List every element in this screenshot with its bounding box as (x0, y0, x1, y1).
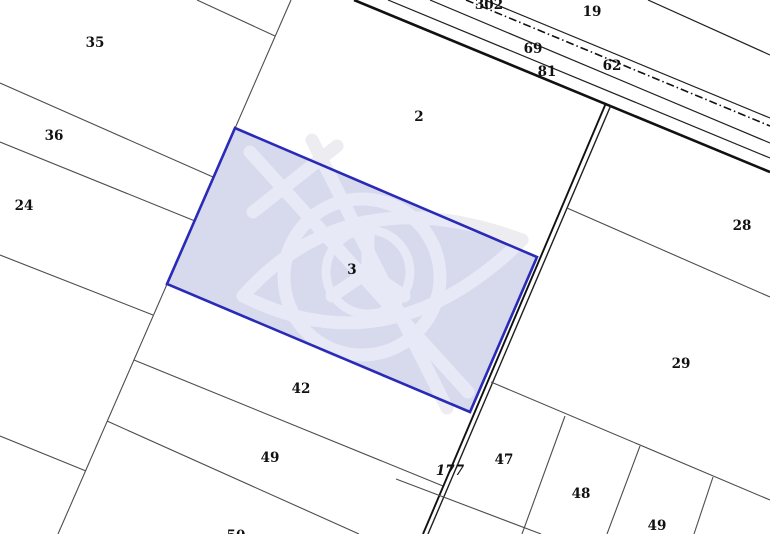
parcel-label-50: 50 (227, 528, 246, 534)
parcel-label-24: 24 (15, 198, 34, 214)
parcel-label-2: 2 (414, 109, 423, 125)
parcel-label-19: 19 (583, 4, 602, 20)
parcel-label-62: 62 (603, 58, 622, 74)
parcel-label-69: 69 (524, 41, 543, 57)
parcel-label-177: 177 (436, 463, 465, 479)
parcel-label-29: 29 (672, 356, 691, 372)
parcel-label-42: 42 (292, 381, 311, 397)
selected-parcel-label-3: 3 (347, 262, 356, 278)
parcel-label-81: 81 (538, 64, 557, 80)
cadastral-map[interactable]: 35362424249503021969816228294748491773 (0, 0, 770, 534)
parcel-label-48: 48 (572, 486, 591, 502)
parcel-label-36: 36 (45, 128, 64, 144)
parcel-label-49: 49 (261, 450, 280, 466)
parcel-label-47: 47 (495, 452, 514, 468)
parcel-label-35: 35 (86, 35, 105, 51)
map-canvas[interactable]: 35362424249503021969816228294748491773 (0, 0, 770, 534)
parcel-label-302: 302 (475, 0, 503, 13)
parcel-label-28: 28 (733, 218, 752, 234)
parcel-label-49: 49 (648, 518, 667, 534)
